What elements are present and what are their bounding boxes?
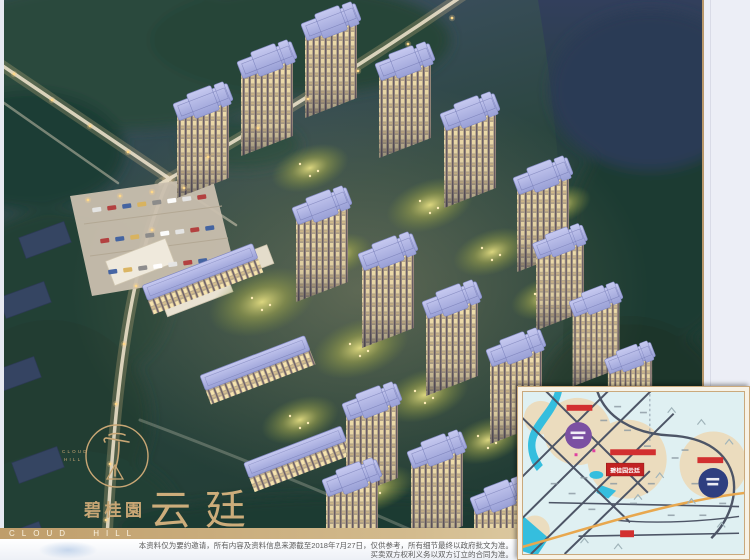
project-name-cn: 云廷 [150, 486, 260, 534]
map-project-marker: 碧桂园云廷 [606, 463, 644, 476]
map-project-label: 碧桂园云廷 [609, 467, 640, 475]
map-poi-blue [698, 468, 728, 498]
emblem-text-hill: HILL [64, 457, 82, 462]
left-margin-strip [0, 0, 4, 560]
map-svg: 碧桂园云廷 [522, 391, 745, 555]
brand-name-cn: 碧桂園 [83, 500, 146, 520]
brand-logo: CLOUD HILL 碧桂園 云廷 [55, 412, 290, 538]
band-text: CLOUD HILL [9, 529, 138, 538]
disclaimer-line-2: 买卖双方权利义务以双方订立的合同为准。 [139, 550, 513, 559]
emblem-text-cloud: CLOUD [62, 449, 89, 454]
poster-root: CLOUD HILL 碧桂園 云廷 CLOUD HILL 本资料仅为要约邀请，所… [0, 0, 750, 560]
watermark-blob [38, 541, 98, 559]
cloud-emblem-icon [86, 425, 148, 487]
disclaimer-line-1: 本资料仅为要约邀请，所有内容及资料信息来源截至2018年7月27日，仅供参考，所… [139, 541, 513, 550]
map-poi-purple [565, 422, 592, 449]
location-map-inset: 碧桂园云廷 [517, 386, 750, 560]
